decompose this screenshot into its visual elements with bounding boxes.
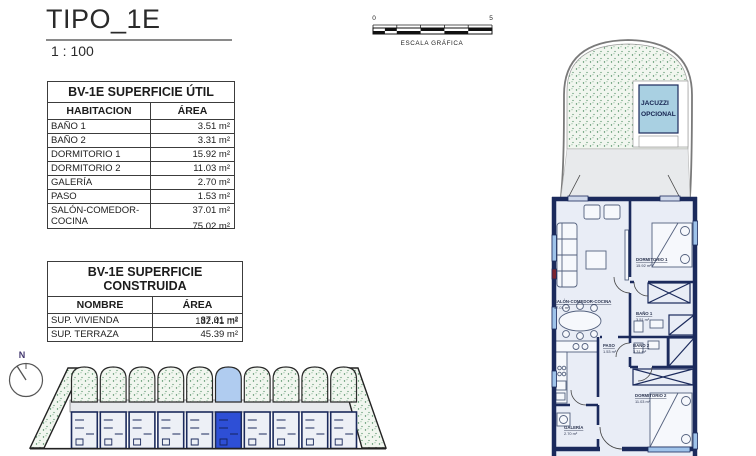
util-total: 75.02 m² [47, 221, 235, 232]
row-area: 15.92 m² [151, 148, 235, 162]
util-col-habitacion: HABITACION [48, 103, 151, 120]
table-row: BAÑO 23.31 m² [48, 134, 235, 148]
superficie-util-table: BV-1E SUPERFICIE ÚTIL HABITACION ÁREA BA… [47, 81, 235, 229]
drawing-scale: 1 : 100 [51, 43, 94, 59]
row-name: PASO [48, 190, 151, 204]
row-name: GALERÍA [48, 176, 151, 190]
row-name: DORMITORIO 2 [48, 162, 151, 176]
row-area: 3.31 m² [151, 134, 235, 148]
room-area-bano2: 3.31 m² [633, 349, 647, 354]
room-label-bano2: BAÑO 2 [633, 343, 650, 348]
row-area: 1.53 m² [151, 190, 235, 204]
scale-caption: ESCALA GRÁFICA [401, 38, 464, 47]
scale-end-label: 5 [489, 15, 493, 22]
table-row: GALERÍA2.70 m² [48, 176, 235, 190]
superficie-construida-table: BV-1E SUPERFICIE CONSTRUIDA NOMBRE ÁREA … [47, 261, 243, 342]
terrace-floor [561, 149, 690, 197]
jacuzzi-label-line1: JACUZZI [641, 100, 669, 107]
title-underline [46, 39, 232, 41]
table-row: DORMITORIO 211.03 m² [48, 162, 235, 176]
room-area-bano1: 3.51 m² [636, 317, 650, 322]
site-unit-terrace [100, 367, 126, 402]
room-label-dorm1: DORMITORIO 1 [636, 257, 668, 262]
row-name: DORMITORIO 1 [48, 148, 151, 162]
site-unit-body-highlighted [216, 412, 242, 449]
site-unit-terrace [129, 367, 155, 402]
table-row: PASO1.53 m² [48, 190, 235, 204]
jacuzzi-label-line2: OPCIONAL [641, 111, 676, 118]
site-unit-terrace [158, 367, 184, 402]
site-unit-body [302, 412, 328, 449]
construida-col-nombre: NOMBRE [48, 297, 153, 314]
site-unit-terrace [302, 367, 328, 402]
row-area: 3.51 m² [151, 120, 235, 134]
room-label-dorm2: DORMITORIO 2 [635, 393, 667, 398]
row-area: 11.03 m² [151, 162, 235, 176]
table-row: DORMITORIO 115.92 m² [48, 148, 235, 162]
site-unit-terrace [331, 367, 357, 402]
page-title: TIPO_1E [46, 4, 161, 35]
row-name: BAÑO 2 [48, 134, 151, 148]
site-unit-terrace [244, 367, 270, 402]
site-unit-body [187, 412, 213, 449]
table-row: SUP. TERRAZA45.39 m² [48, 328, 243, 342]
construida-table-title: BV-1E SUPERFICIE CONSTRUIDA [48, 262, 243, 297]
site-unit-body [100, 412, 126, 449]
room-label-galeria: GALERÍA [564, 425, 583, 430]
jacuzzi [639, 85, 678, 133]
construida-col-area: ÁREA [153, 297, 243, 314]
room-label-paso: PASO [603, 343, 616, 348]
table-row: BAÑO 13.51 m² [48, 120, 235, 134]
room-area-dorm1: 15.92 m² [636, 263, 652, 268]
construida-total: 132.41 m² [47, 316, 243, 327]
graphic-scale-bar: 0 5 ESCALA GRÁFICA [372, 12, 494, 50]
jacuzzi-step [639, 136, 678, 147]
plan-sheet: TIPO_1E 1 : 100 0 5 ESCALA GRÁFICA BV-1E… [0, 0, 756, 456]
site-unit-body [244, 412, 270, 449]
scale-bar-segments [373, 28, 492, 34]
row-name: BAÑO 1 [48, 120, 151, 134]
scale-start-label: 0 [372, 15, 376, 22]
site-unit-terrace [273, 367, 299, 402]
site-unit-terrace [72, 367, 98, 402]
floor-plan: JACUZZI OPCIONAL [540, 25, 756, 456]
site-unit-body [158, 412, 184, 449]
site-unit-body [273, 412, 299, 449]
site-unit-body [129, 412, 155, 449]
site-unit-body [331, 412, 357, 449]
site-unit-body [72, 412, 98, 449]
compass-needle [17, 366, 26, 380]
north-label: N [19, 350, 26, 360]
room-area-galeria: 2.70 m² [564, 431, 578, 436]
util-col-area: ÁREA [151, 103, 235, 120]
site-unit-terrace-highlighted [216, 367, 242, 402]
room-area-paso: 1.53 m² [603, 349, 617, 354]
room-label-salon: SALÓN-COMEDOR-COCINA [554, 299, 611, 304]
row-area: 45.39 m² [153, 328, 243, 342]
site-plan [28, 344, 390, 456]
util-table-title: BV-1E SUPERFICIE ÚTIL [48, 82, 235, 103]
site-unit-terrace [187, 367, 213, 402]
row-area: 2.70 m² [151, 176, 235, 190]
room-area-salon: 37.01 m² [554, 305, 570, 310]
room-label-bano1: BAÑO 1 [636, 311, 653, 316]
row-name: SUP. TERRAZA [48, 328, 153, 342]
room-area-dorm2: 11.03 m² [635, 399, 651, 404]
